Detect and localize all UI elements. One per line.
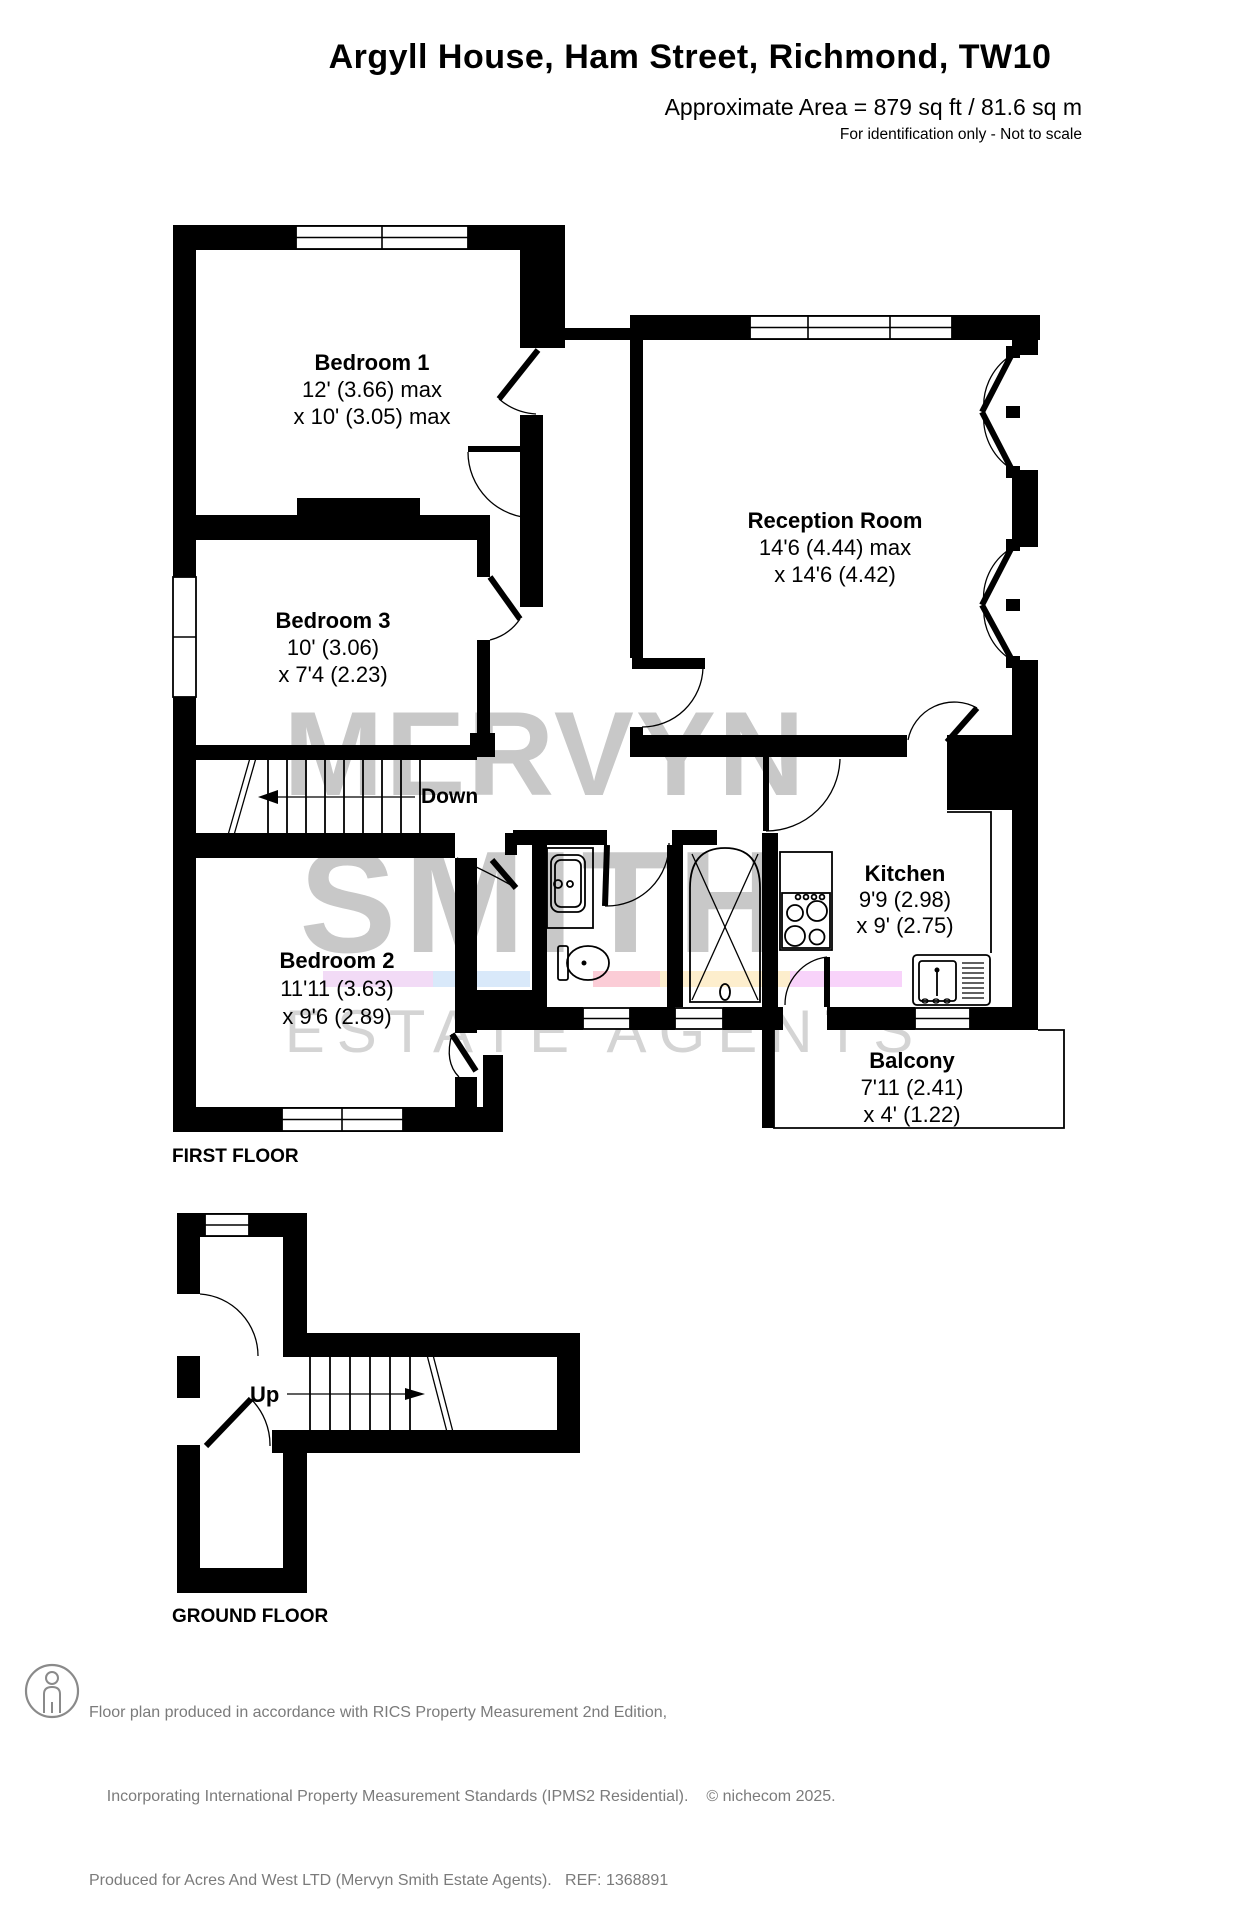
- bedroom3-window: [173, 577, 196, 697]
- room-bedroom1: Bedroom 1 12' (3.66) max x 10' (3.05) ma…: [293, 350, 450, 429]
- svg-text:x 7'4 (2.23): x 7'4 (2.23): [278, 662, 387, 687]
- room-reception: Reception Room 14'6 (4.44) max x 14'6 (4…: [748, 508, 923, 587]
- watermark-stripe: [790, 971, 902, 987]
- footer-line-1: Floor plan produced in accordance with R…: [89, 1702, 836, 1723]
- svg-text:14'6 (4.44) max: 14'6 (4.44) max: [759, 535, 911, 560]
- room-balcony: Balcony 7'11 (2.41) x 4' (1.22): [861, 1048, 964, 1127]
- first-floor-label: FIRST FLOOR: [172, 1146, 299, 1167]
- svg-text:Kitchen: Kitchen: [865, 861, 946, 886]
- svg-text:9'9 (2.98): 9'9 (2.98): [859, 887, 951, 912]
- svg-text:10' (3.06): 10' (3.06): [287, 635, 379, 660]
- footer-line-2: Incorporating International Property Mea…: [107, 1788, 689, 1805]
- stair-break-line: [228, 758, 256, 835]
- bedroom3-door: [490, 577, 520, 640]
- ground-floor-plan: Up GROUND FLOOR: [172, 1213, 580, 1627]
- footer: Floor plan produced in accordance with R…: [89, 1660, 836, 1912]
- hall-opening-door: [200, 1294, 258, 1356]
- bathroom-window: [583, 1008, 630, 1029]
- bath-window: [675, 1008, 723, 1029]
- svg-text:x 9' (2.75): x 9' (2.75): [856, 913, 953, 938]
- kitchen-window: [915, 1008, 970, 1029]
- footer-line-3: Produced for Acres And West LTD (Mervyn …: [89, 1870, 836, 1891]
- reception-window: [750, 316, 952, 339]
- kitchen-counter: [947, 812, 991, 953]
- svg-text:Bedroom 2: Bedroom 2: [280, 948, 395, 973]
- room-kitchen: Kitchen 9'9 (2.98) x 9' (2.75): [856, 861, 953, 938]
- svg-text:12' (3.66) max: 12' (3.66) max: [302, 377, 442, 402]
- person-icon: [24, 1662, 80, 1720]
- svg-text:7'11 (2.41): 7'11 (2.41): [861, 1075, 964, 1100]
- stairs-down-label: Down: [421, 785, 478, 808]
- ground-floor-window: [205, 1214, 249, 1236]
- floorplan-canvas: MERVYN SMITH ESTATE AGENTS: [0, 0, 1241, 1755]
- svg-text:Reception Room: Reception Room: [748, 508, 923, 533]
- svg-text:x 10' (3.05) max: x 10' (3.05) max: [293, 404, 450, 429]
- stairs-up-label: Up: [250, 1382, 279, 1407]
- bedroom2-window: [282, 1108, 403, 1131]
- svg-text:Bedroom 1: Bedroom 1: [315, 350, 430, 375]
- svg-text:x 4' (1.22): x 4' (1.22): [863, 1102, 960, 1127]
- footer-copyright: © nichecom 2025.: [706, 1788, 835, 1805]
- bedroom1-window: [296, 226, 468, 249]
- room-bedroom2: Bedroom 2 11'11 (3.63) x 9'6 (2.89): [280, 948, 395, 1029]
- ground-floor-label: GROUND FLOOR: [172, 1606, 328, 1627]
- svg-text:Bedroom 3: Bedroom 3: [276, 608, 391, 633]
- stairs-up: Up: [250, 1355, 453, 1432]
- ground-floor-walls: [177, 1213, 580, 1593]
- stairs-up-arrow: [287, 1388, 425, 1400]
- svg-text:11'11 (3.63): 11'11 (3.63): [280, 976, 393, 1001]
- stair-break-line: [427, 1355, 453, 1432]
- svg-text:Balcony: Balcony: [869, 1048, 955, 1073]
- bedroom1-door: [499, 350, 538, 414]
- svg-text:x 9'6 (2.89): x 9'6 (2.89): [282, 1004, 391, 1029]
- room-bedroom3: Bedroom 3 10' (3.06) x 7'4 (2.23): [276, 608, 391, 687]
- svg-text:x 14'6 (4.42): x 14'6 (4.42): [774, 562, 896, 587]
